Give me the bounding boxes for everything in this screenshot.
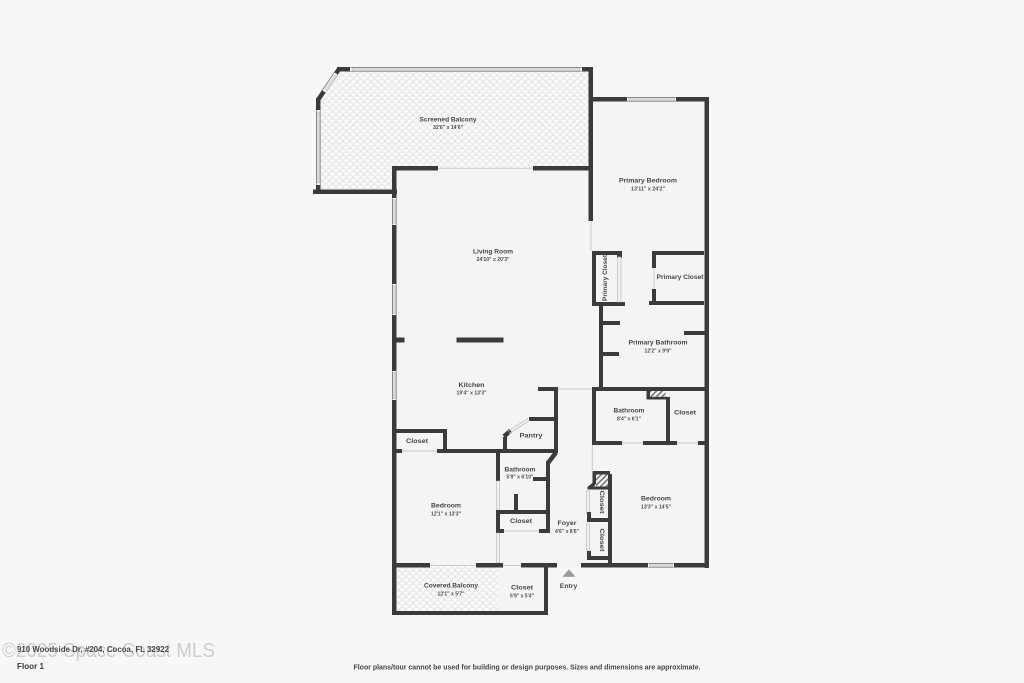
svg-text:Primary Bathroom: Primary Bathroom — [629, 340, 688, 347]
svg-text:Foyer: Foyer — [558, 520, 577, 527]
svg-text:Kitchen: Kitchen — [459, 382, 485, 389]
svg-text:Closet: Closet — [510, 518, 533, 525]
svg-text:Closet: Closet — [598, 529, 605, 553]
svg-text:Primary Closet: Primary Closet — [602, 254, 609, 301]
svg-text:Closet: Closet — [511, 585, 534, 592]
svg-text:13'3" x 14'5": 13'3" x 14'5" — [641, 505, 672, 511]
svg-text:Pantry: Pantry — [520, 433, 543, 440]
svg-text:Primary Bedroom: Primary Bedroom — [619, 178, 677, 185]
svg-text:32'6" x 14'6": 32'6" x 14'6" — [433, 125, 464, 131]
svg-text:Bedroom: Bedroom — [641, 496, 671, 503]
svg-text:Screened Balcony: Screened Balcony — [420, 117, 477, 124]
svg-text:19'4" x 13'3": 19'4" x 13'3" — [457, 391, 488, 397]
svg-text:5'9" x 5'4": 5'9" x 5'4" — [510, 594, 535, 600]
svg-text:910 Woodside Dr, #204, Cocoa,: 910 Woodside Dr, #204, Cocoa, FL 32922 — [17, 645, 170, 654]
svg-text:Bedroom: Bedroom — [431, 503, 461, 510]
svg-text:12'1" x 5'7": 12'1" x 5'7" — [438, 592, 466, 598]
svg-text:Floor 1: Floor 1 — [17, 661, 44, 671]
svg-text:5'9" x 6'10": 5'9" x 6'10" — [507, 475, 535, 481]
svg-text:12'2" x 9'9": 12'2" x 9'9" — [645, 349, 673, 355]
svg-text:8'4" x 6'1": 8'4" x 6'1" — [617, 417, 642, 423]
svg-text:Closet: Closet — [674, 410, 697, 417]
svg-text:Closet: Closet — [598, 491, 605, 515]
svg-text:Bathroom: Bathroom — [614, 408, 645, 415]
svg-text:Living Room: Living Room — [473, 249, 513, 256]
svg-text:Entry: Entry — [560, 583, 578, 590]
svg-text:13'11" x 24'2": 13'11" x 24'2" — [631, 187, 666, 193]
svg-text:Primary Closet: Primary Closet — [657, 274, 705, 281]
svg-text:12'1" x 13'3": 12'1" x 13'3" — [431, 512, 462, 518]
svg-text:Closet: Closet — [406, 438, 429, 445]
svg-text:4'6" x 8'6": 4'6" x 8'6" — [555, 529, 580, 535]
svg-text:Floor plans/tour cannot be use: Floor plans/tour cannot be used for buil… — [354, 663, 701, 672]
svg-text:24'10" x 20'3": 24'10" x 20'3" — [477, 257, 511, 263]
svg-text:Covered Balcony: Covered Balcony — [424, 583, 478, 590]
svg-text:Bathroom: Bathroom — [505, 467, 536, 474]
